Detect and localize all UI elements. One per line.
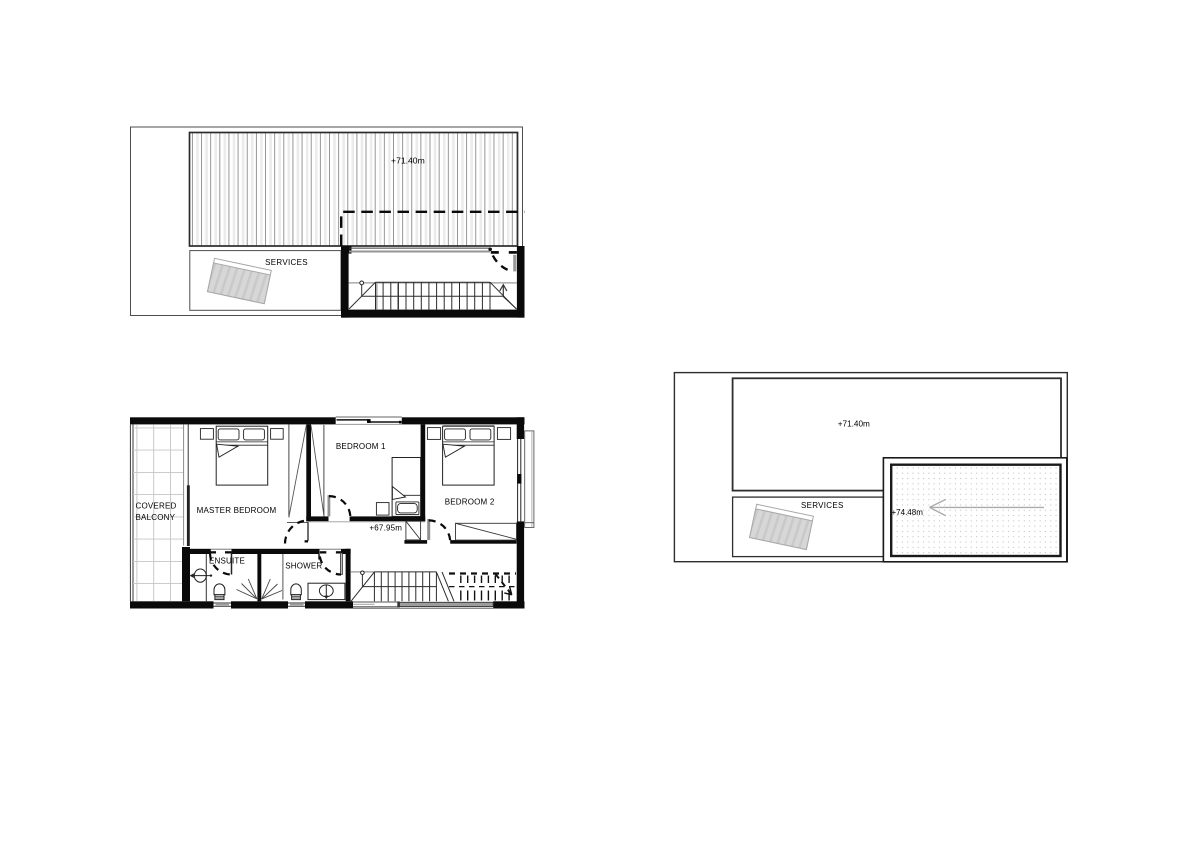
svg-text:BEDROOM 2: BEDROOM 2 bbox=[445, 498, 495, 507]
svg-text:BALCONY: BALCONY bbox=[136, 513, 176, 522]
svg-text:BEDROOM 1: BEDROOM 1 bbox=[336, 442, 386, 451]
svg-text:+71.40m: +71.40m bbox=[391, 156, 425, 166]
svg-text:+71.40m: +71.40m bbox=[838, 420, 870, 429]
svg-text:SERVICES: SERVICES bbox=[265, 258, 308, 267]
svg-text:SHOWER: SHOWER bbox=[285, 562, 322, 571]
svg-text:COVERED: COVERED bbox=[136, 502, 177, 511]
svg-text:MASTER BEDROOM: MASTER BEDROOM bbox=[197, 506, 277, 515]
svg-text:+74.48m: +74.48m bbox=[892, 508, 924, 517]
svg-text:+67.95m: +67.95m bbox=[369, 524, 402, 533]
svg-text:SERVICES: SERVICES bbox=[801, 501, 844, 510]
svg-text:ENSUITE: ENSUITE bbox=[209, 557, 245, 566]
